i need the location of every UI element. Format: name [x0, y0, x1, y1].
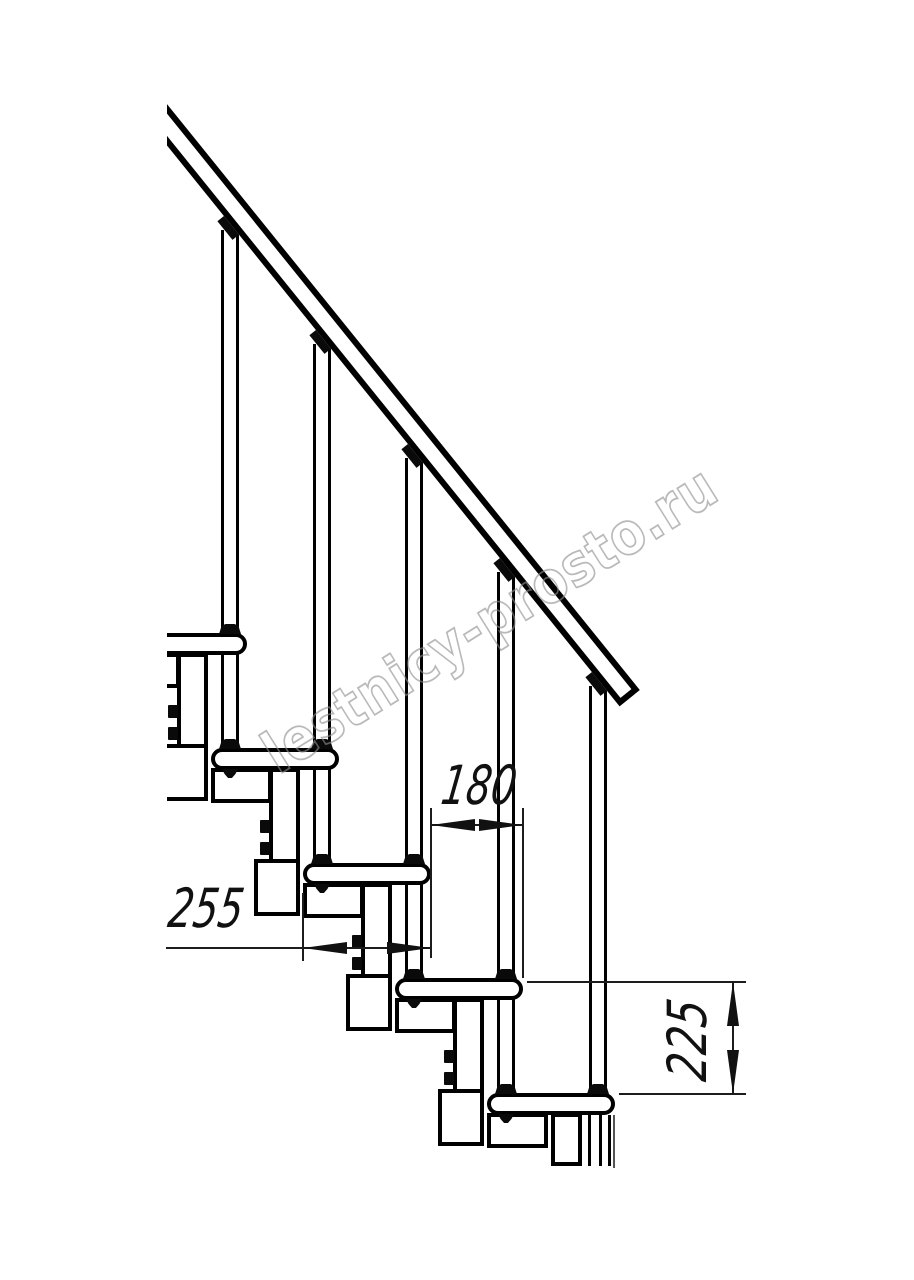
watermark-text: lestnicy-prosto.ru	[252, 456, 727, 784]
staircase-technical-drawing: 180 255 225 lestnicy-prosto.ru	[0, 0, 914, 1280]
watermark-layer: lestnicy-prosto.ru	[0, 0, 914, 1280]
